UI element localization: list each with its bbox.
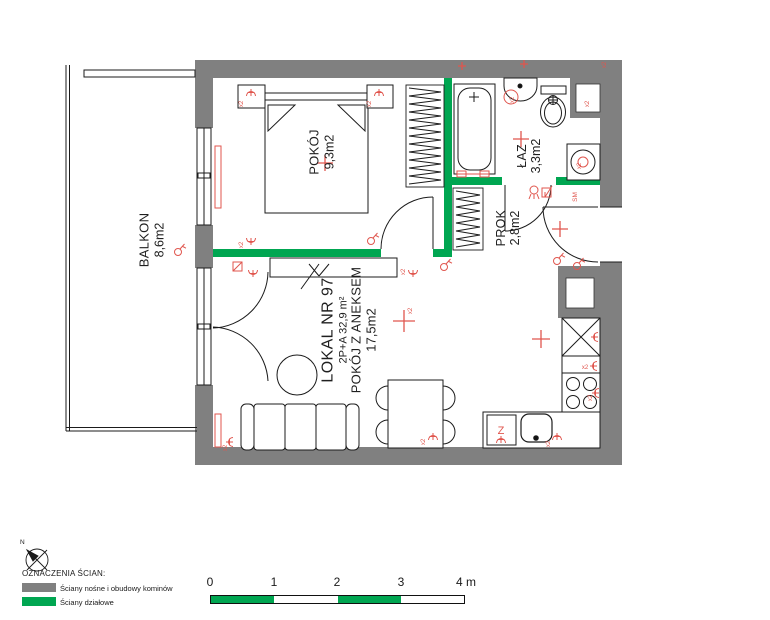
scalebar-segment [274, 596, 337, 603]
round-table [277, 355, 317, 395]
room-label-bathroom: ŁAZ 3,3m2 [515, 139, 543, 174]
svg-text:x2: x2 [408, 307, 414, 314]
dishwasher-label: Z [498, 425, 505, 437]
compass-north-label: N [20, 539, 25, 546]
svg-text:x2: x2 [223, 444, 229, 451]
svg-text:x2: x2 [239, 241, 245, 248]
sofa [241, 404, 359, 450]
hall-wardrobe [453, 188, 483, 250]
scalebar-tick-1: 1 [271, 575, 278, 589]
svg-text:x2: x2 [577, 162, 583, 169]
radiator-window [215, 146, 221, 208]
washbasin [504, 78, 537, 101]
svg-text:x2: x2 [401, 268, 407, 275]
entrance-opening-jambs [600, 207, 622, 262]
unit-label: LOKAL NR 97 2P+A 32,9 m² POKÓJ Z ANEKSEM… [319, 267, 378, 394]
bathtub [454, 84, 495, 174]
entrance-devices [529, 186, 552, 199]
room-label-bedroom: POKÓJ 9,3m2 [308, 129, 337, 175]
balcony-door [197, 268, 268, 385]
smoke-detector-label: SM [572, 192, 579, 202]
entrance-door [543, 207, 598, 262]
scalebar-tick-2: 2 [334, 575, 341, 589]
washing-machine [567, 144, 600, 180]
floor-plan-drawing: x2 x2 x2 x2 x2 x2 x2 x2 x2 x2 x2 x2 x2 x… [0, 0, 770, 620]
bedroom-wardrobe [406, 85, 444, 187]
room-label-hall: PROK 2,8m2 [494, 210, 522, 247]
room-name: ŁAZ [515, 139, 529, 174]
scalebar [210, 595, 465, 604]
legend-label: Ściany działowe [60, 598, 114, 607]
dining-table [388, 380, 443, 448]
svg-text:x2: x2 [546, 440, 552, 447]
floor-plan-canvas: x2 x2 x2 x2 x2 x2 x2 x2 x2 x2 x2 x2 x2 x… [0, 0, 770, 620]
room-area: 9,3m2 [322, 129, 336, 175]
room-area: 3,3m2 [529, 139, 543, 174]
kitchen-sink [521, 414, 552, 442]
scalebar-tick-3: 3 [398, 575, 405, 589]
unit-number: LOKAL NR 97 [319, 267, 337, 394]
scalebar-segment [401, 596, 464, 603]
scalebar-segment [338, 596, 401, 603]
balcony-railing [66, 65, 197, 431]
radiator-living [215, 414, 221, 447]
svg-text:x2: x2 [602, 61, 608, 68]
legend-swatch-green [22, 597, 56, 606]
legend-swatch-gray [22, 583, 56, 592]
svg-text:x2: x2 [510, 96, 516, 103]
svg-text:x2: x2 [421, 438, 427, 445]
bedroom-door [381, 197, 433, 249]
compass-icon [26, 549, 48, 571]
toilet [541, 86, 567, 127]
scalebar-segment [211, 596, 274, 603]
legend-label: Ściany nośne i obudowy kominów [60, 584, 173, 593]
legend-title: OZNACZENIA ŚCIAN: [22, 569, 105, 578]
bedroom-window [197, 128, 211, 225]
scalebar-end-label: 4 m [456, 575, 476, 589]
room-name: BALKON [138, 213, 153, 268]
unit-room-area: 17,5m2 [364, 267, 379, 394]
unit-room-name: POKÓJ Z ANEKSEM [350, 267, 365, 394]
svg-text:x2: x2 [367, 100, 373, 107]
room-area: 8,6m2 [152, 213, 166, 268]
room-label-balcony: BALKON 8,6m2 [138, 213, 167, 268]
svg-text:x2: x2 [588, 394, 594, 401]
scalebar-tick-0: 0 [207, 575, 214, 589]
room-name: POKÓJ [308, 129, 323, 175]
room-area: 2,8m2 [508, 210, 522, 247]
room-name: PROK [494, 210, 508, 247]
svg-text:x2: x2 [585, 100, 591, 107]
svg-text:x2: x2 [239, 100, 245, 107]
svg-text:x2: x2 [582, 365, 589, 371]
